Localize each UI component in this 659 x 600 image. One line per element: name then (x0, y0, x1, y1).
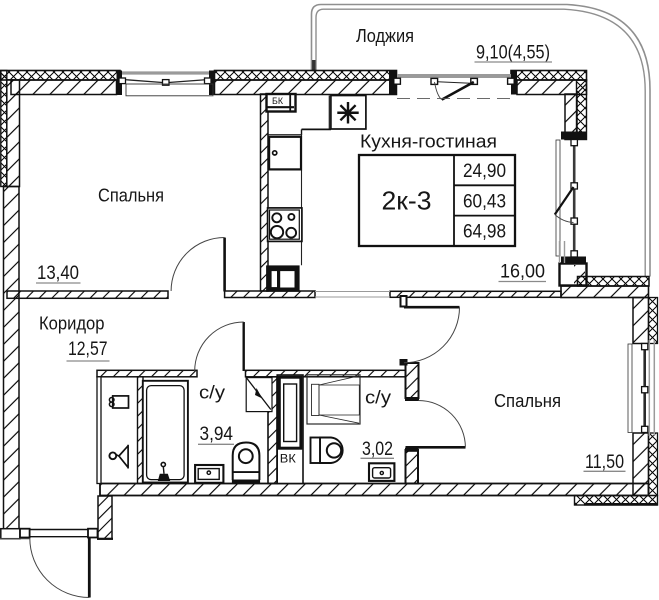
svg-text:Спальня: Спальня (494, 390, 561, 411)
svg-text:2к-3: 2к-3 (382, 186, 432, 216)
svg-text:Коридор: Коридор (39, 313, 105, 334)
svg-text:16,00: 16,00 (500, 262, 545, 283)
svg-text:11,50: 11,50 (585, 452, 624, 473)
svg-text:3,02: 3,02 (362, 439, 393, 460)
svg-text:64,98: 64,98 (463, 222, 506, 243)
svg-text:ВК: ВК (280, 452, 296, 466)
svg-text:с/у: с/у (199, 383, 225, 403)
svg-text:с/у: с/у (365, 388, 391, 408)
svg-text:9,10(4,55): 9,10(4,55) (476, 43, 550, 64)
svg-text:24,90: 24,90 (463, 161, 506, 182)
svg-text:3,94: 3,94 (200, 424, 234, 445)
svg-text:Лоджия: Лоджия (356, 25, 414, 46)
svg-text:Спальня: Спальня (98, 185, 164, 206)
svg-text:60,43: 60,43 (463, 191, 506, 212)
svg-text:Кухня-гостиная: Кухня-гостиная (360, 131, 497, 152)
svg-text:12,57: 12,57 (68, 339, 108, 360)
svg-text:13,40: 13,40 (37, 263, 79, 284)
svg-text:БК: БК (272, 96, 284, 106)
